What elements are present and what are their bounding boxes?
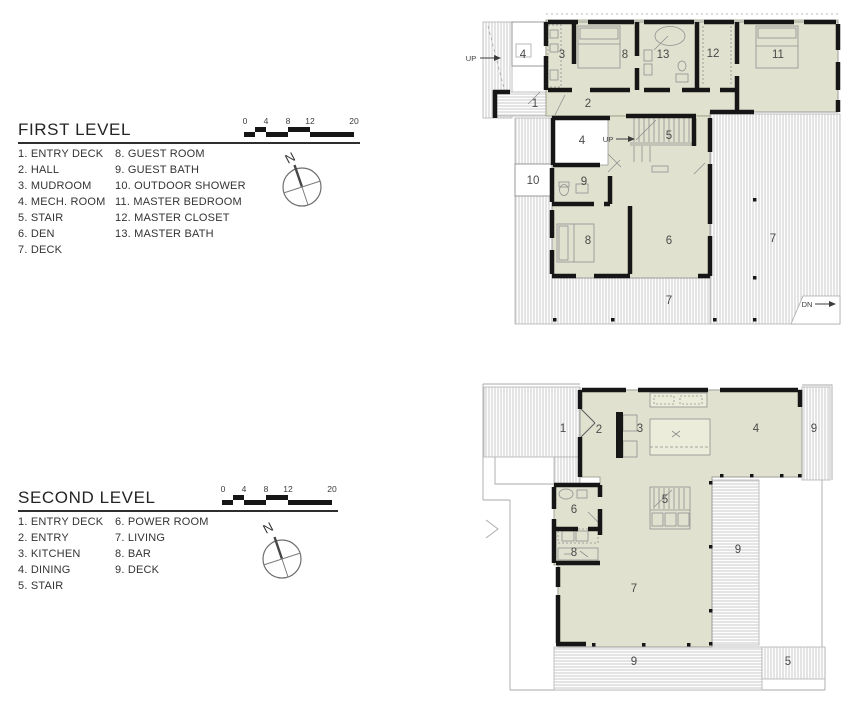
legend-item: 6. POWER ROOM	[115, 514, 209, 530]
second-level-legend: 1. ENTRY DECK 2. ENTRY 3. KITCHEN 4. DIN…	[18, 514, 209, 594]
right-deck-area	[710, 480, 759, 645]
legend-item: 2. ENTRY	[18, 530, 115, 546]
legend-item: 7. DECK	[18, 242, 115, 258]
legend-item: 5. STAIR	[18, 578, 115, 594]
first-level-scale-bar: 0 4 8 12 20	[242, 116, 360, 140]
scale-tick: 8	[264, 484, 269, 494]
entry-steps-area	[493, 92, 552, 116]
room-label-master-bath: 13	[657, 49, 670, 61]
legend-item: 1. ENTRY DECK	[18, 146, 115, 162]
room-label-entry-deck: 1	[532, 98, 538, 110]
scale-tick: 20	[349, 116, 359, 126]
room-label-den: 6	[666, 235, 672, 247]
room-label-stair: 5	[666, 130, 672, 142]
right-deck-area	[710, 114, 840, 324]
legend-item: 9. GUEST BATH	[115, 162, 246, 178]
room-label-outdoor-shower: 10	[527, 175, 540, 187]
legend-item: 9. DECK	[115, 562, 209, 578]
scale-tick: 12	[283, 484, 293, 494]
room-label-master-closet: 12	[707, 48, 720, 60]
scale-tick: 4	[242, 484, 247, 494]
first-level-header: FIRST LEVEL 0 4 8 12 20	[18, 116, 360, 144]
first-level-legend: 1. ENTRY DECK 2. HALL 3. MUDROOM 4. MECH…	[18, 146, 246, 258]
room-label-power-room: 6	[571, 504, 577, 516]
scale-bar-blocks	[222, 495, 332, 505]
legend-item: 4. MECH. ROOM	[18, 194, 115, 210]
legend-item: 6. DEN	[18, 226, 115, 242]
room-label-up-stair: UP	[603, 135, 613, 144]
room-label-entry: 2	[596, 424, 602, 436]
scale-tick: 20	[327, 484, 337, 494]
legend-item: 4. DINING	[18, 562, 115, 578]
room-label-master-bedroom: 11	[772, 49, 784, 61]
kitchen-counter	[650, 393, 707, 407]
room-label-deck-right: 7	[770, 233, 776, 245]
room-label-entry-deck: 1	[560, 423, 566, 435]
floor-plan-sheet: { "colors": { "room_fill": "#e0e2cf", "w…	[0, 0, 850, 701]
second-level-header: SECOND LEVEL 0 4 8 12 20	[18, 484, 338, 512]
entry-deck-area	[484, 387, 580, 457]
room-label-up-deck: UP	[466, 54, 476, 63]
left-deck-area	[515, 118, 552, 324]
second-level-scale-bar: 0 4 8 12 20	[220, 484, 338, 508]
first-level-title: FIRST LEVEL	[18, 120, 131, 140]
room-label-mudroom: 3	[559, 49, 565, 61]
scale-tick: 0	[221, 484, 226, 494]
bottom-deck-area	[552, 278, 710, 324]
legend-item: 8. GUEST ROOM	[115, 146, 246, 162]
room-label-stair: 5	[662, 494, 668, 506]
scale-tick: 8	[286, 116, 291, 126]
outdoor-stair-area	[762, 647, 825, 679]
room-label-dining: 4	[753, 423, 760, 435]
scale-tick: 4	[264, 116, 269, 126]
second-level-title: SECOND LEVEL	[18, 488, 156, 508]
room-label-bar: 8	[571, 547, 577, 559]
legend-item: 3. KITCHEN	[18, 546, 115, 562]
room-label-guest-bath: 9	[581, 176, 587, 188]
legend-item: 10. OUTDOOR SHOWER	[115, 178, 246, 194]
scale-bar-blocks	[244, 127, 354, 137]
first-level-plan: UP 4 3 8 13 12 11 1 2 4 UP 5 10 9 8 6 7 …	[458, 6, 848, 341]
room-label-deck-top: 9	[811, 423, 817, 435]
room-label-mech-top: 4	[520, 49, 527, 61]
scale-tick: 0	[243, 116, 248, 126]
room-label-guest-room: 8	[585, 235, 591, 247]
legend-item: 3. MUDROOM	[18, 178, 115, 194]
room-label-deck-bottom: 9	[631, 656, 637, 668]
legend-item: 13. MASTER BATH	[115, 226, 246, 242]
legend-item: 12. MASTER CLOSET	[115, 210, 246, 226]
room-label-hall: 2	[585, 98, 591, 110]
legend-item: 8. BAR	[115, 546, 209, 562]
second-level-plan: 1 2 3 4 9 5 6 8 7 9 9 5	[482, 357, 847, 699]
scale-tick: 12	[305, 116, 315, 126]
legend-item: 2. HALL	[18, 162, 115, 178]
room-label-living: 7	[631, 583, 637, 595]
north-arrow-icon: N	[246, 516, 314, 588]
room-label-guest-room-top: 8	[622, 49, 628, 61]
bottom-deck-area	[554, 647, 762, 690]
room-label-deck-right: 9	[735, 544, 741, 556]
kitchen-tall-cabinet	[616, 412, 623, 458]
north-label: N	[282, 149, 297, 167]
north-arrow-icon: N	[268, 144, 336, 216]
room-label-kitchen: 3	[637, 423, 643, 435]
room-label-down: DN	[802, 300, 813, 309]
room-label-mech-mid: 4	[579, 135, 586, 147]
legend-item: 1. ENTRY DECK	[18, 514, 115, 530]
legend-item: 7. LIVING	[115, 530, 209, 546]
room-label-deck-bottom: 7	[666, 295, 672, 307]
legend-item: 11. MASTER BEDROOM	[115, 194, 246, 210]
legend-item: 5. STAIR	[18, 210, 115, 226]
room-label-outdoor-stair: 5	[785, 656, 791, 668]
north-label: N	[260, 519, 275, 537]
